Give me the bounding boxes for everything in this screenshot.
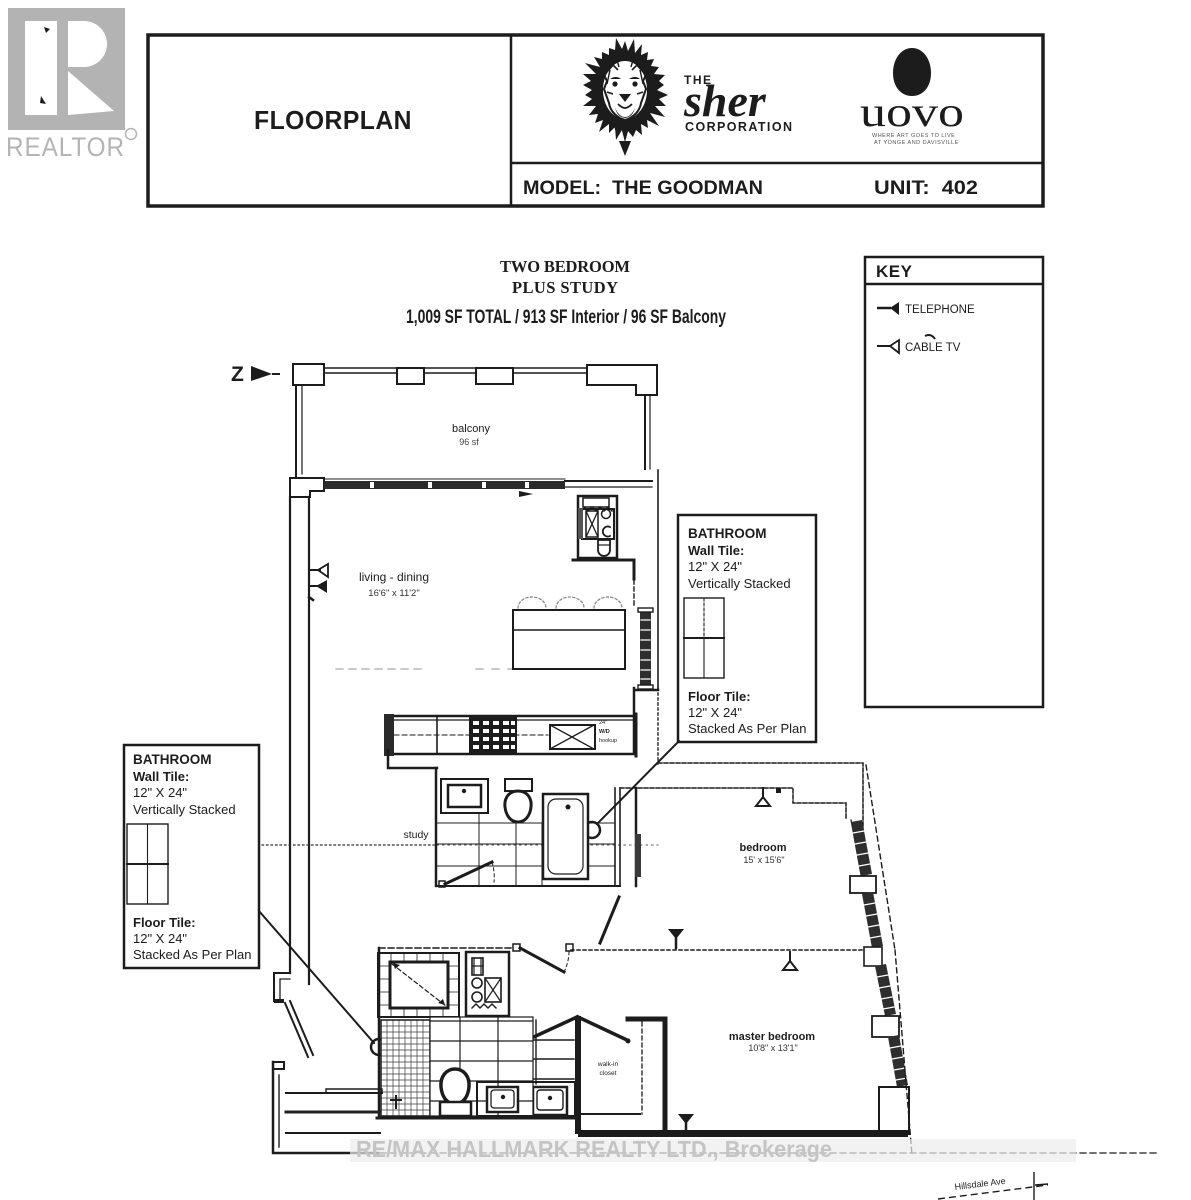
- svg-text:REALTOR: REALTOR: [6, 132, 125, 162]
- svg-text:CORPORATION: CORPORATION: [685, 120, 792, 134]
- svg-text:10'8" x 13'1": 10'8" x 13'1": [748, 1043, 797, 1053]
- svg-text:BATHROOM: BATHROOM: [133, 752, 212, 767]
- svg-text:Vertically Stacked: Vertically Stacked: [133, 802, 236, 817]
- svg-text:living - dining: living - dining: [359, 570, 429, 584]
- svg-text:15' x 15'6": 15' x 15'6": [743, 855, 784, 865]
- svg-text:TELEPHONE: TELEPHONE: [905, 304, 975, 316]
- svg-text:Stacked As Per Plan: Stacked As Per Plan: [688, 721, 807, 736]
- svg-text:96 sf: 96 sf: [459, 437, 479, 447]
- svg-text:WHERE ART GOES TO LIVE: WHERE ART GOES TO LIVE: [872, 133, 955, 139]
- svg-text:12" X 24": 12" X 24": [133, 785, 187, 800]
- svg-text:FLOORPLAN: FLOORPLAN: [254, 105, 412, 135]
- svg-text:Wall Tile:: Wall Tile:: [688, 543, 744, 558]
- svg-text:RE/MAX HALLMARK REALTY LTD., B: RE/MAX HALLMARK REALTY LTD., Brokerage: [356, 1136, 832, 1162]
- svg-text:16'6" x 11'2": 16'6" x 11'2": [368, 588, 419, 599]
- svg-text:MODEL: THE GOODMAN: MODEL: THE GOODMAN: [523, 177, 763, 199]
- svg-text:24": 24": [599, 720, 607, 726]
- svg-text:12" X 24": 12" X 24": [688, 705, 742, 720]
- svg-text:Floor Tile:: Floor Tile:: [688, 689, 751, 704]
- svg-text:balcony: balcony: [452, 423, 490, 435]
- svg-text:AT YONGE AND DAVISVILLE: AT YONGE AND DAVISVILLE: [874, 140, 959, 146]
- svg-text:Floor Tile:: Floor Tile:: [133, 915, 196, 930]
- svg-text:KEY: KEY: [876, 262, 913, 281]
- svg-text:TWO BEDROOM: TWO BEDROOM: [500, 257, 630, 276]
- svg-text:12" X 24": 12" X 24": [688, 559, 742, 574]
- svg-text:UNIT: 402: UNIT: 402: [874, 177, 978, 199]
- svg-text:W/D: W/D: [599, 729, 610, 735]
- svg-text:study: study: [403, 829, 429, 841]
- svg-text:walk-in: walk-in: [597, 1061, 619, 1068]
- svg-text:CABLE TV: CABLE TV: [905, 342, 961, 354]
- svg-text:BATHROOM: BATHROOM: [688, 526, 767, 541]
- svg-text:1,009 SF TOTAL / 913 SF Interi: 1,009 SF TOTAL / 913 SF Interior / 96 SF…: [406, 307, 726, 328]
- svg-text:master bedroom: master bedroom: [729, 1031, 815, 1043]
- svg-text:closet: closet: [600, 1070, 617, 1077]
- svg-text:bedroom: bedroom: [739, 842, 786, 854]
- svg-text:Stacked As Per Plan: Stacked As Per Plan: [133, 947, 252, 962]
- svg-text:Wall Tile:: Wall Tile:: [133, 769, 189, 784]
- svg-text:Vertically Stacked: Vertically Stacked: [688, 576, 791, 591]
- svg-text:sher: sher: [683, 75, 767, 126]
- svg-text:hookup: hookup: [599, 738, 617, 744]
- svg-text:Z: Z: [231, 363, 244, 386]
- svg-text:uovo: uovo: [860, 90, 964, 136]
- svg-text:PLUS STUDY: PLUS STUDY: [512, 278, 618, 297]
- svg-text:12" X 24": 12" X 24": [133, 931, 187, 946]
